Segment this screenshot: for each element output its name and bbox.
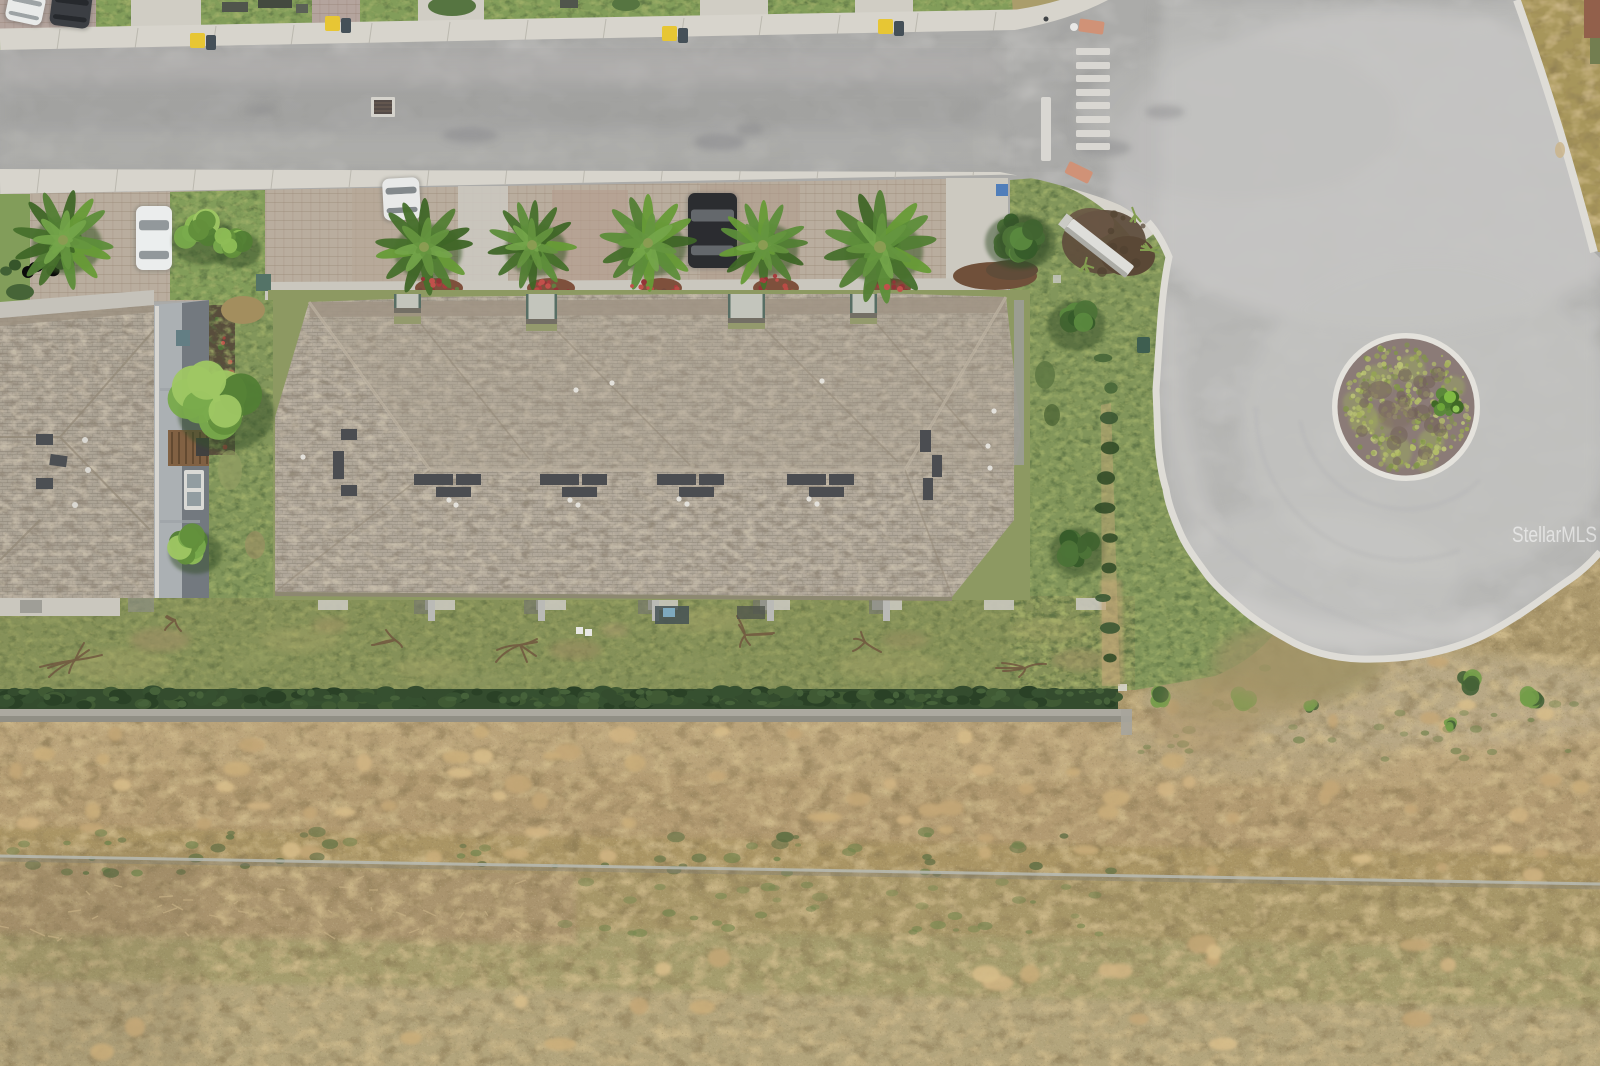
svg-text:StellarMLS: StellarMLS (1512, 522, 1597, 547)
